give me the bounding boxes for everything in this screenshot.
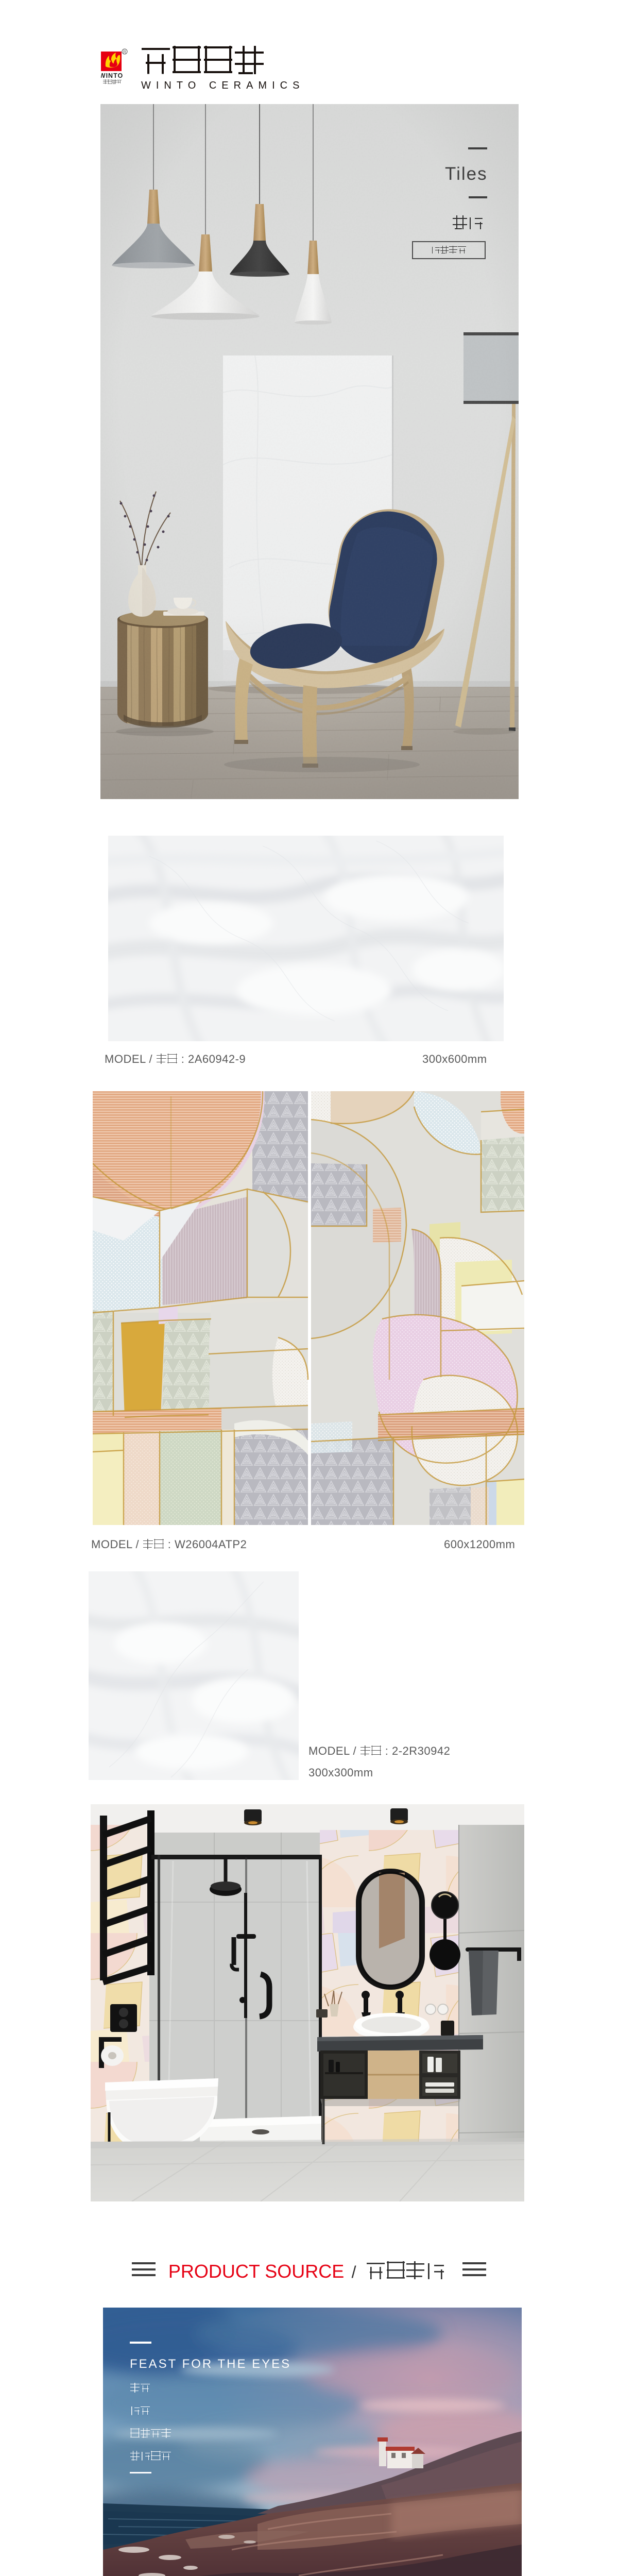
svg-text:WINTO: WINTO: [101, 72, 123, 79]
svg-text:R: R: [123, 50, 126, 55]
